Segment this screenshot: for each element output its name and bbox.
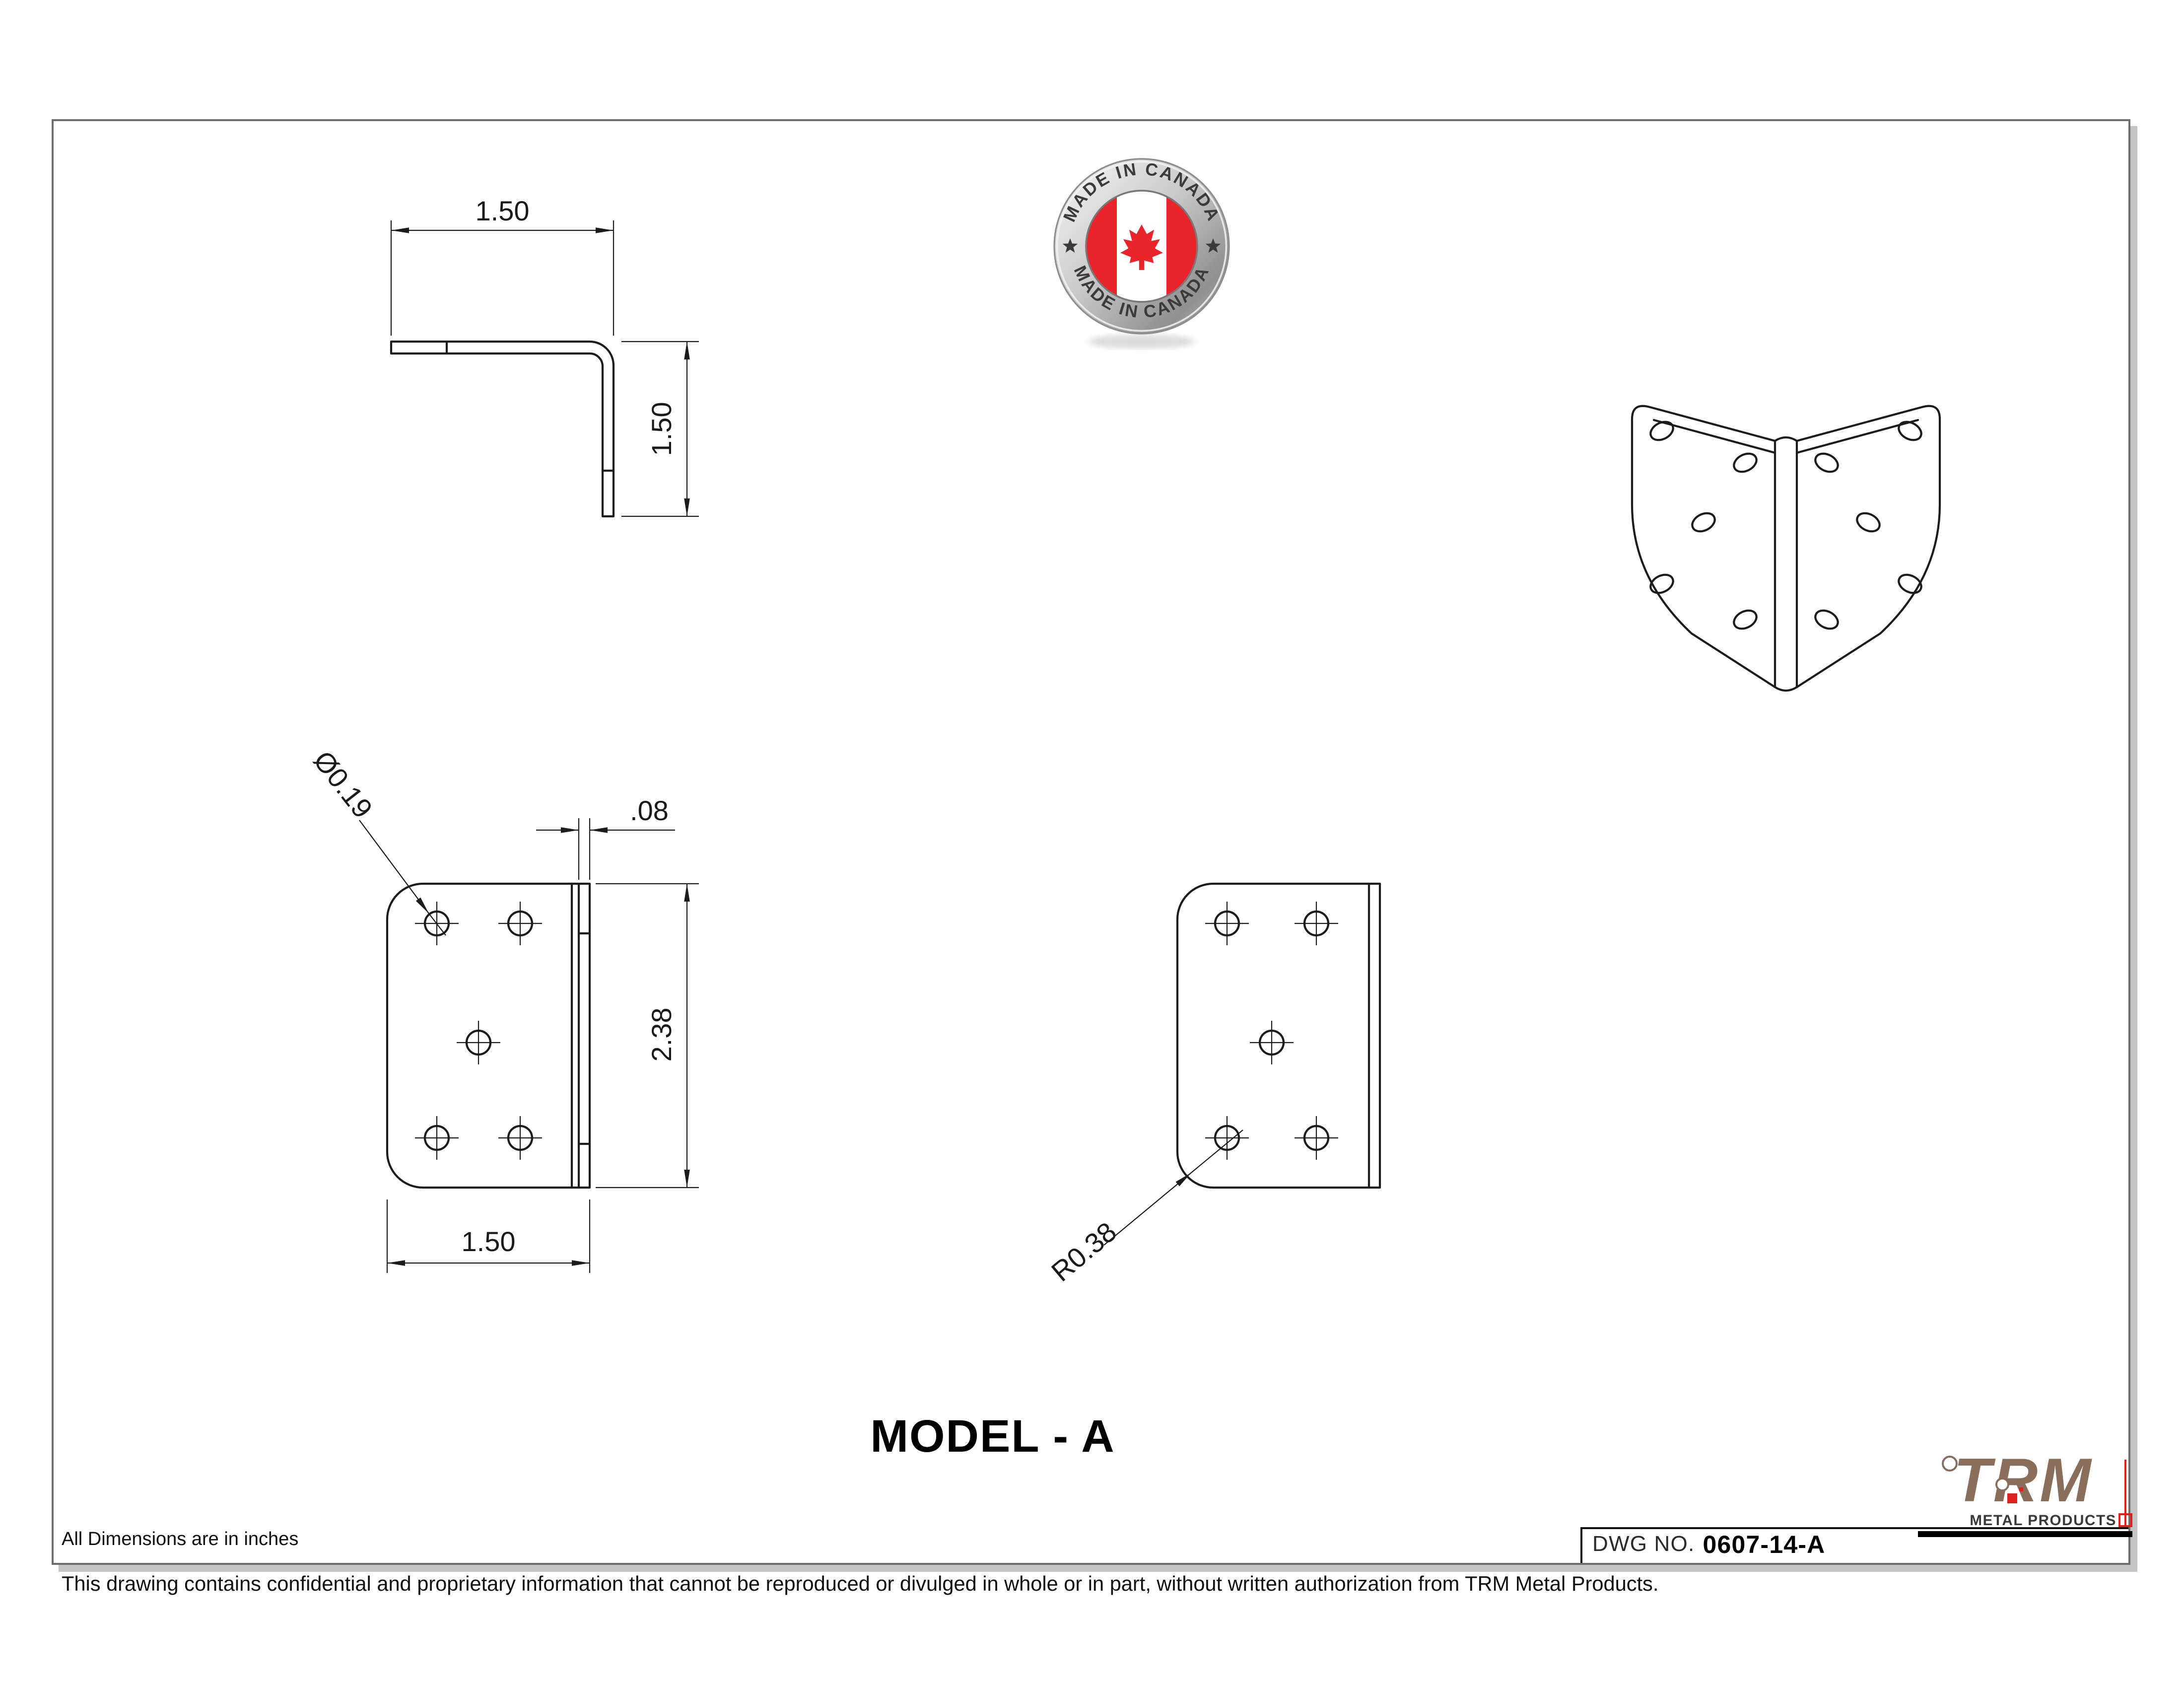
top-view-height-dim: 1.50: [646, 402, 677, 456]
leader-tail: [1191, 1130, 1243, 1173]
front-flange-edge: [572, 884, 590, 1188]
side-plate-outline: [1177, 884, 1380, 1188]
front-holes: [415, 902, 542, 1160]
extension-lines: [579, 818, 590, 880]
circuit-pad-icon: [1995, 1477, 2009, 1491]
iso-holes-left: [1647, 418, 1760, 632]
dwg-number-label: DWG NO.: [1592, 1533, 1695, 1557]
confidentiality-note: This drawing contains confidential and p…: [62, 1575, 2047, 1597]
top-view-profile: [391, 342, 614, 516]
iso-left-face: [1632, 406, 1775, 687]
front-view: Ø0.19 .08 2.38 1.50: [308, 745, 699, 1273]
drawing-page: 1.50 1.50 MADE IN CANADA MADE IN CANADA: [0, 0, 2184, 1688]
iso-bend-caps: [1775, 437, 1797, 691]
plate-height-dim: 2.38: [646, 1008, 677, 1062]
logo-red-line: [2125, 1460, 2126, 1527]
trm-logo-text: TRM: [1954, 1446, 2093, 1515]
logo-underline-bar: [1918, 1532, 2132, 1537]
circuit-pad-icon: [1942, 1456, 1958, 1472]
badge-shadow: [1088, 335, 1195, 349]
trm-logo: TRM METAL PRODUCTS: [1954, 1452, 2132, 1535]
plate-width-dim: 1.50: [462, 1226, 516, 1257]
dwg-number-value: 0607-14-A: [1703, 1531, 1825, 1559]
made-in-canada-badge: MADE IN CANADA MADE IN CANADA: [1054, 159, 1229, 349]
front-plate-outline: [387, 884, 572, 1188]
model-title: MODEL - A: [794, 1410, 1191, 1464]
top-view-width-dim: 1.50: [476, 195, 530, 226]
trm-logo-wordmark: TRM: [1954, 1452, 2132, 1510]
extension-lines: [391, 220, 614, 336]
front-bend-ticks: [579, 933, 590, 1144]
iso-right-face: [1797, 406, 1940, 687]
red-square-icon: [2018, 1486, 2023, 1491]
iso-holes-right: [1812, 418, 1924, 632]
side-view: R0.38: [1045, 884, 1380, 1287]
units-note: All Dimensions are in inches: [62, 1529, 298, 1551]
red-square-icon: [2007, 1493, 2016, 1502]
isometric-view: [1632, 406, 1940, 691]
top-view: 1.50 1.50: [391, 195, 699, 516]
corner-radius-dim: R0.38: [1045, 1216, 1122, 1287]
side-holes: [1205, 902, 1338, 1160]
hole-diameter-dim: Ø0.19: [308, 745, 379, 824]
thickness-dim: .08: [630, 795, 669, 826]
